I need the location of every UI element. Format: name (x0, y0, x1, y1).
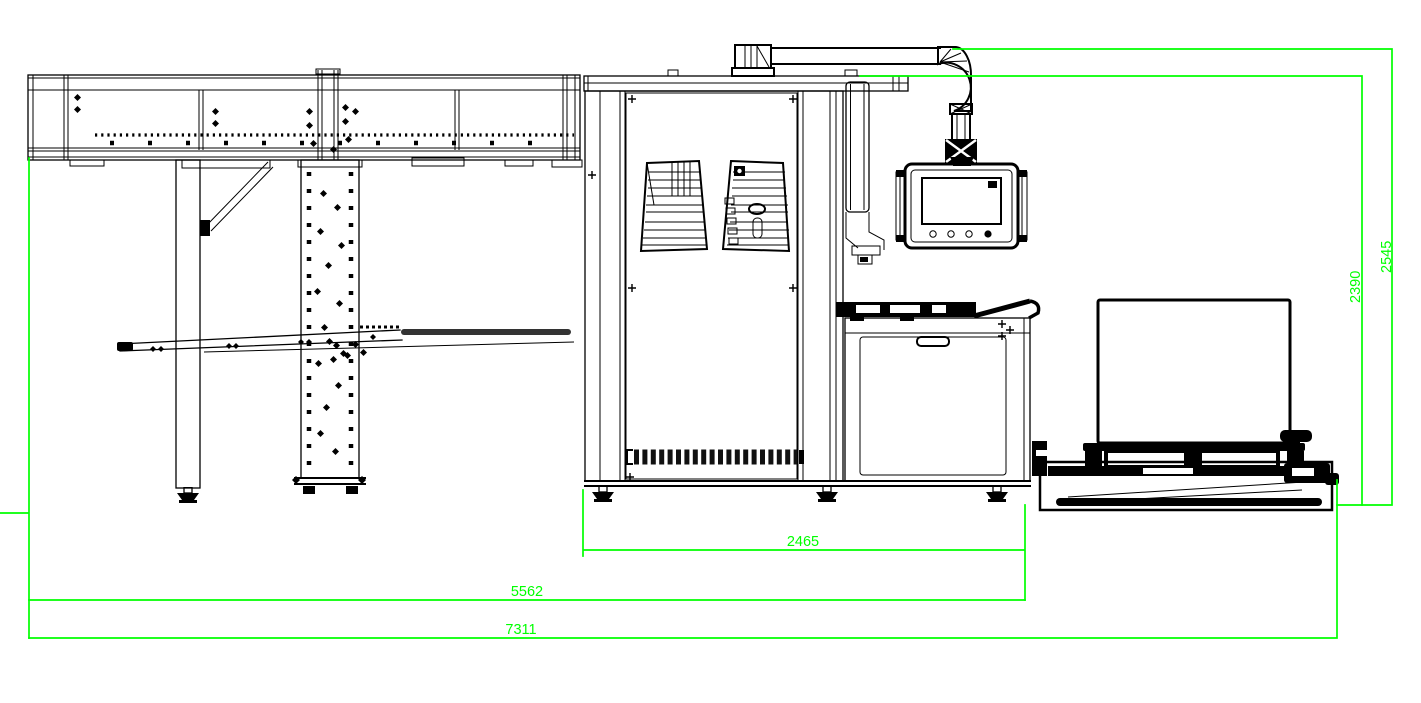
blank-magazine-left (641, 161, 707, 251)
machine-layout-drawing: 2465 5562 7311 2390 2545 (0, 0, 1421, 703)
dim-label-7311: 7311 (505, 622, 536, 638)
dim-label-2545: 2545 (1379, 241, 1395, 273)
side-panel-bracket (846, 82, 884, 264)
outfeed-lift-unit (836, 301, 1039, 481)
blank-magazine-right (723, 161, 789, 251)
vent-grille (627, 450, 804, 464)
monitor-swivel-arm (732, 45, 976, 166)
door-handle (917, 337, 949, 346)
dimension-extension-left (0, 158, 29, 638)
infeed-conveyor (28, 69, 582, 168)
dim-label-2465: 2465 (787, 534, 819, 550)
hmi-panel (896, 157, 1027, 248)
hmi-button (948, 231, 954, 237)
dimension-2465: 2465 (583, 490, 1025, 600)
main-machine-cabinet (584, 70, 1030, 502)
dimension-2545: 2545 (953, 49, 1395, 505)
hmi-button (984, 230, 991, 237)
dim-label-5562: 5562 (511, 584, 543, 600)
hmi-button (930, 231, 936, 237)
dim-label-2390: 2390 (1348, 271, 1364, 303)
cad-drawing-canvas: 2465 5562 7311 2390 2545 (0, 0, 1421, 703)
box-on-pallet (1083, 300, 1305, 467)
side-table-arm (117, 327, 574, 359)
conveyor-support-leg (176, 160, 273, 503)
hmi-button (966, 231, 972, 237)
dimension-5562: 5562 (29, 584, 1025, 600)
perforated-support-column (292, 160, 366, 494)
